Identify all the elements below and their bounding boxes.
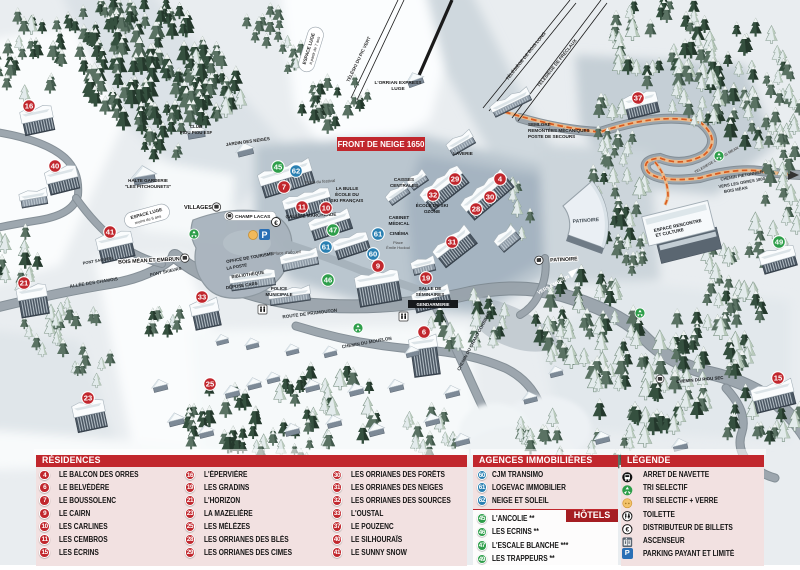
svg-text:CLUB: CLUB — [190, 124, 202, 129]
svg-text:10: 10 — [322, 204, 330, 213]
svg-text:6: 6 — [422, 328, 426, 337]
svg-text:VILLAGES: VILLAGES — [184, 205, 212, 211]
svg-text:33: 33 — [198, 293, 206, 302]
svg-text:11: 11 — [298, 203, 307, 212]
svg-text:€: € — [274, 220, 278, 227]
svg-text:7: 7 — [282, 183, 286, 192]
svg-text:SÉMINAIRES: SÉMINAIRES — [416, 290, 445, 297]
svg-text:ÉCOLE DU: ÉCOLE DU — [335, 190, 359, 197]
svg-text:46: 46 — [324, 276, 332, 285]
svg-text:CABINET: CABINET — [389, 215, 410, 220]
svg-text:SKI FRANÇAIS: SKI FRANÇAIS — [331, 198, 364, 203]
svg-text:15: 15 — [774, 374, 783, 383]
svg-text:23: 23 — [84, 394, 92, 403]
svg-text:SEMLORE: SEMLORE — [528, 122, 551, 127]
svg-text:P: P — [261, 230, 267, 240]
svg-text:61: 61 — [374, 230, 383, 239]
svg-text:30: 30 — [486, 193, 494, 202]
svg-text:SALLE DE: SALLE DE — [419, 286, 442, 291]
svg-text:47: 47 — [329, 226, 337, 235]
svg-text:62: 62 — [292, 167, 300, 176]
svg-text:9: 9 — [376, 262, 380, 271]
svg-text:"LES PITCHOUNETS": "LES PITCHOUNETS" — [125, 184, 172, 189]
svg-text:GENDARMERIE: GENDARMERIE — [417, 302, 450, 307]
svg-text:60: 60 — [369, 250, 377, 259]
svg-text:49: 49 — [775, 238, 783, 247]
svg-text:21: 21 — [20, 279, 29, 288]
svg-text:28: 28 — [472, 205, 480, 214]
svg-text:19: 19 — [422, 274, 430, 283]
svg-text:MUNICIPALE: MUNICIPALE — [266, 292, 293, 297]
svg-text:29: 29 — [451, 175, 459, 184]
svg-text:FRONT DE NEIGE 1650: FRONT DE NEIGE 1650 — [338, 140, 425, 149]
svg-text:POLICE: POLICE — [271, 286, 287, 291]
svg-text:CAISSES: CAISSES — [394, 177, 414, 182]
svg-text:L'ORRIAN EXPRESS: L'ORRIAN EXPRESS — [375, 80, 423, 86]
svg-text:CHAMP LACAS: CHAMP LACAS — [235, 214, 271, 220]
svg-text:LAVERIE: LAVERIE — [453, 151, 473, 156]
svg-text:31: 31 — [448, 238, 457, 247]
svg-text:CENTRALES: CENTRALES — [390, 183, 418, 188]
svg-text:HALTE GARDERIE: HALTE GARDERIE — [128, 178, 168, 183]
svg-text:37: 37 — [634, 94, 642, 103]
svg-text:POSTE DE SECOURS: POSTE DE SECOURS — [528, 134, 575, 139]
svg-text:45: 45 — [274, 163, 283, 172]
svg-text:40: 40 — [51, 162, 59, 171]
svg-text:LA BULLE: LA BULLE — [336, 186, 359, 191]
svg-text:Émile Hodoul: Émile Hodoul — [386, 245, 410, 250]
svg-text:PIOU PIOU ESF: PIOU PIOU ESF — [180, 130, 213, 135]
svg-text:LUGE: LUGE — [391, 86, 405, 92]
svg-text:MÉDICAL: MÉDICAL — [389, 219, 410, 226]
svg-text:OZONE: OZONE — [424, 209, 440, 214]
svg-text:41: 41 — [106, 228, 115, 237]
svg-text:REMONTÉES MÉCANIQUES: REMONTÉES MÉCANIQUES — [528, 126, 590, 133]
svg-text:61: 61 — [322, 243, 331, 252]
svg-text:25: 25 — [206, 380, 215, 389]
svg-text:€: € — [625, 527, 629, 534]
svg-text:32: 32 — [429, 191, 437, 200]
svg-text:16: 16 — [25, 102, 33, 111]
